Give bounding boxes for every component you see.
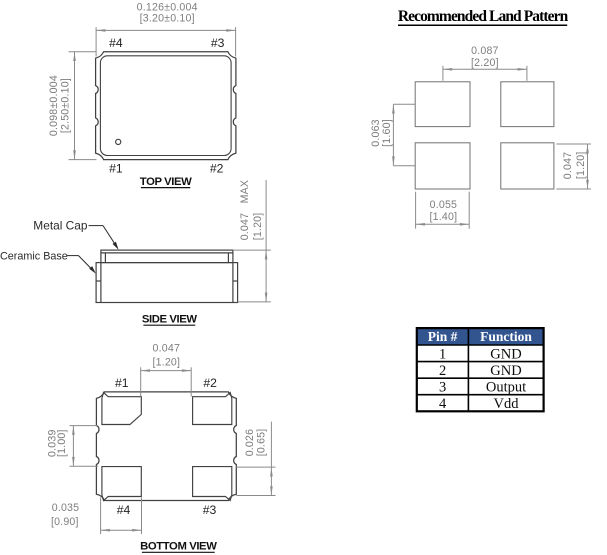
svg-text:0.026: 0.026 [244,429,256,457]
svg-text:#2: #2 [203,376,217,390]
svg-text:#4: #4 [117,503,131,517]
svg-text:GND: GND [490,346,521,362]
svg-text:#2: #2 [210,162,224,176]
svg-text:Recommended Land Pattern: Recommended Land Pattern [398,8,569,25]
svg-text:[2.20]: [2.20] [471,57,499,69]
svg-text:Metal Cap: Metal Cap [33,219,88,233]
svg-text:Output: Output [486,379,526,395]
svg-text:0.087: 0.087 [471,45,499,57]
svg-text:1: 1 [439,346,446,362]
svg-text:[1.00]: [1.00] [56,429,68,457]
svg-text:#1: #1 [109,162,123,176]
svg-text:[1.40]: [1.40] [430,211,458,223]
svg-text:BOTTOM VIEW: BOTTOM VIEW [140,541,217,553]
svg-text:0.035: 0.035 [52,502,80,514]
svg-text:Function: Function [480,329,532,344]
svg-text:#3: #3 [211,36,225,50]
svg-text:Pin #: Pin # [428,329,458,344]
svg-text:3: 3 [439,379,446,395]
svg-text:[1.20]: [1.20] [152,356,180,368]
svg-text:0.047: 0.047 [562,152,574,180]
svg-text:0.047 MAX: 0.047 MAX [239,180,251,241]
svg-text:SIDE VIEW: SIDE VIEW [142,314,198,326]
svg-text:[1.20]: [1.20] [575,151,587,179]
svg-text:Vdd: Vdd [494,396,520,412]
svg-text:[2.50±0.10]: [2.50±0.10] [59,78,71,133]
svg-text:[0.90]: [0.90] [51,516,79,528]
svg-text:0.047: 0.047 [153,343,181,355]
svg-text:0.063: 0.063 [370,119,382,147]
svg-text:0.055: 0.055 [430,199,458,211]
svg-text:#1: #1 [115,376,129,390]
svg-text:[1.20]: [1.20] [252,213,264,241]
svg-text:#4: #4 [109,36,123,50]
svg-text:4: 4 [439,396,447,412]
svg-text:TOP VIEW: TOP VIEW [140,176,192,188]
svg-text:2: 2 [439,363,446,379]
svg-text:0.098±0.004: 0.098±0.004 [48,75,60,136]
svg-text:[0.65]: [0.65] [256,429,268,457]
svg-text:[1.60]: [1.60] [381,119,393,147]
svg-text:#3: #3 [203,503,217,517]
svg-text:[3.20±0.10]: [3.20±0.10] [140,12,195,24]
svg-text:Ceramic Base: Ceramic Base [0,251,68,263]
svg-text:GND: GND [490,363,521,379]
